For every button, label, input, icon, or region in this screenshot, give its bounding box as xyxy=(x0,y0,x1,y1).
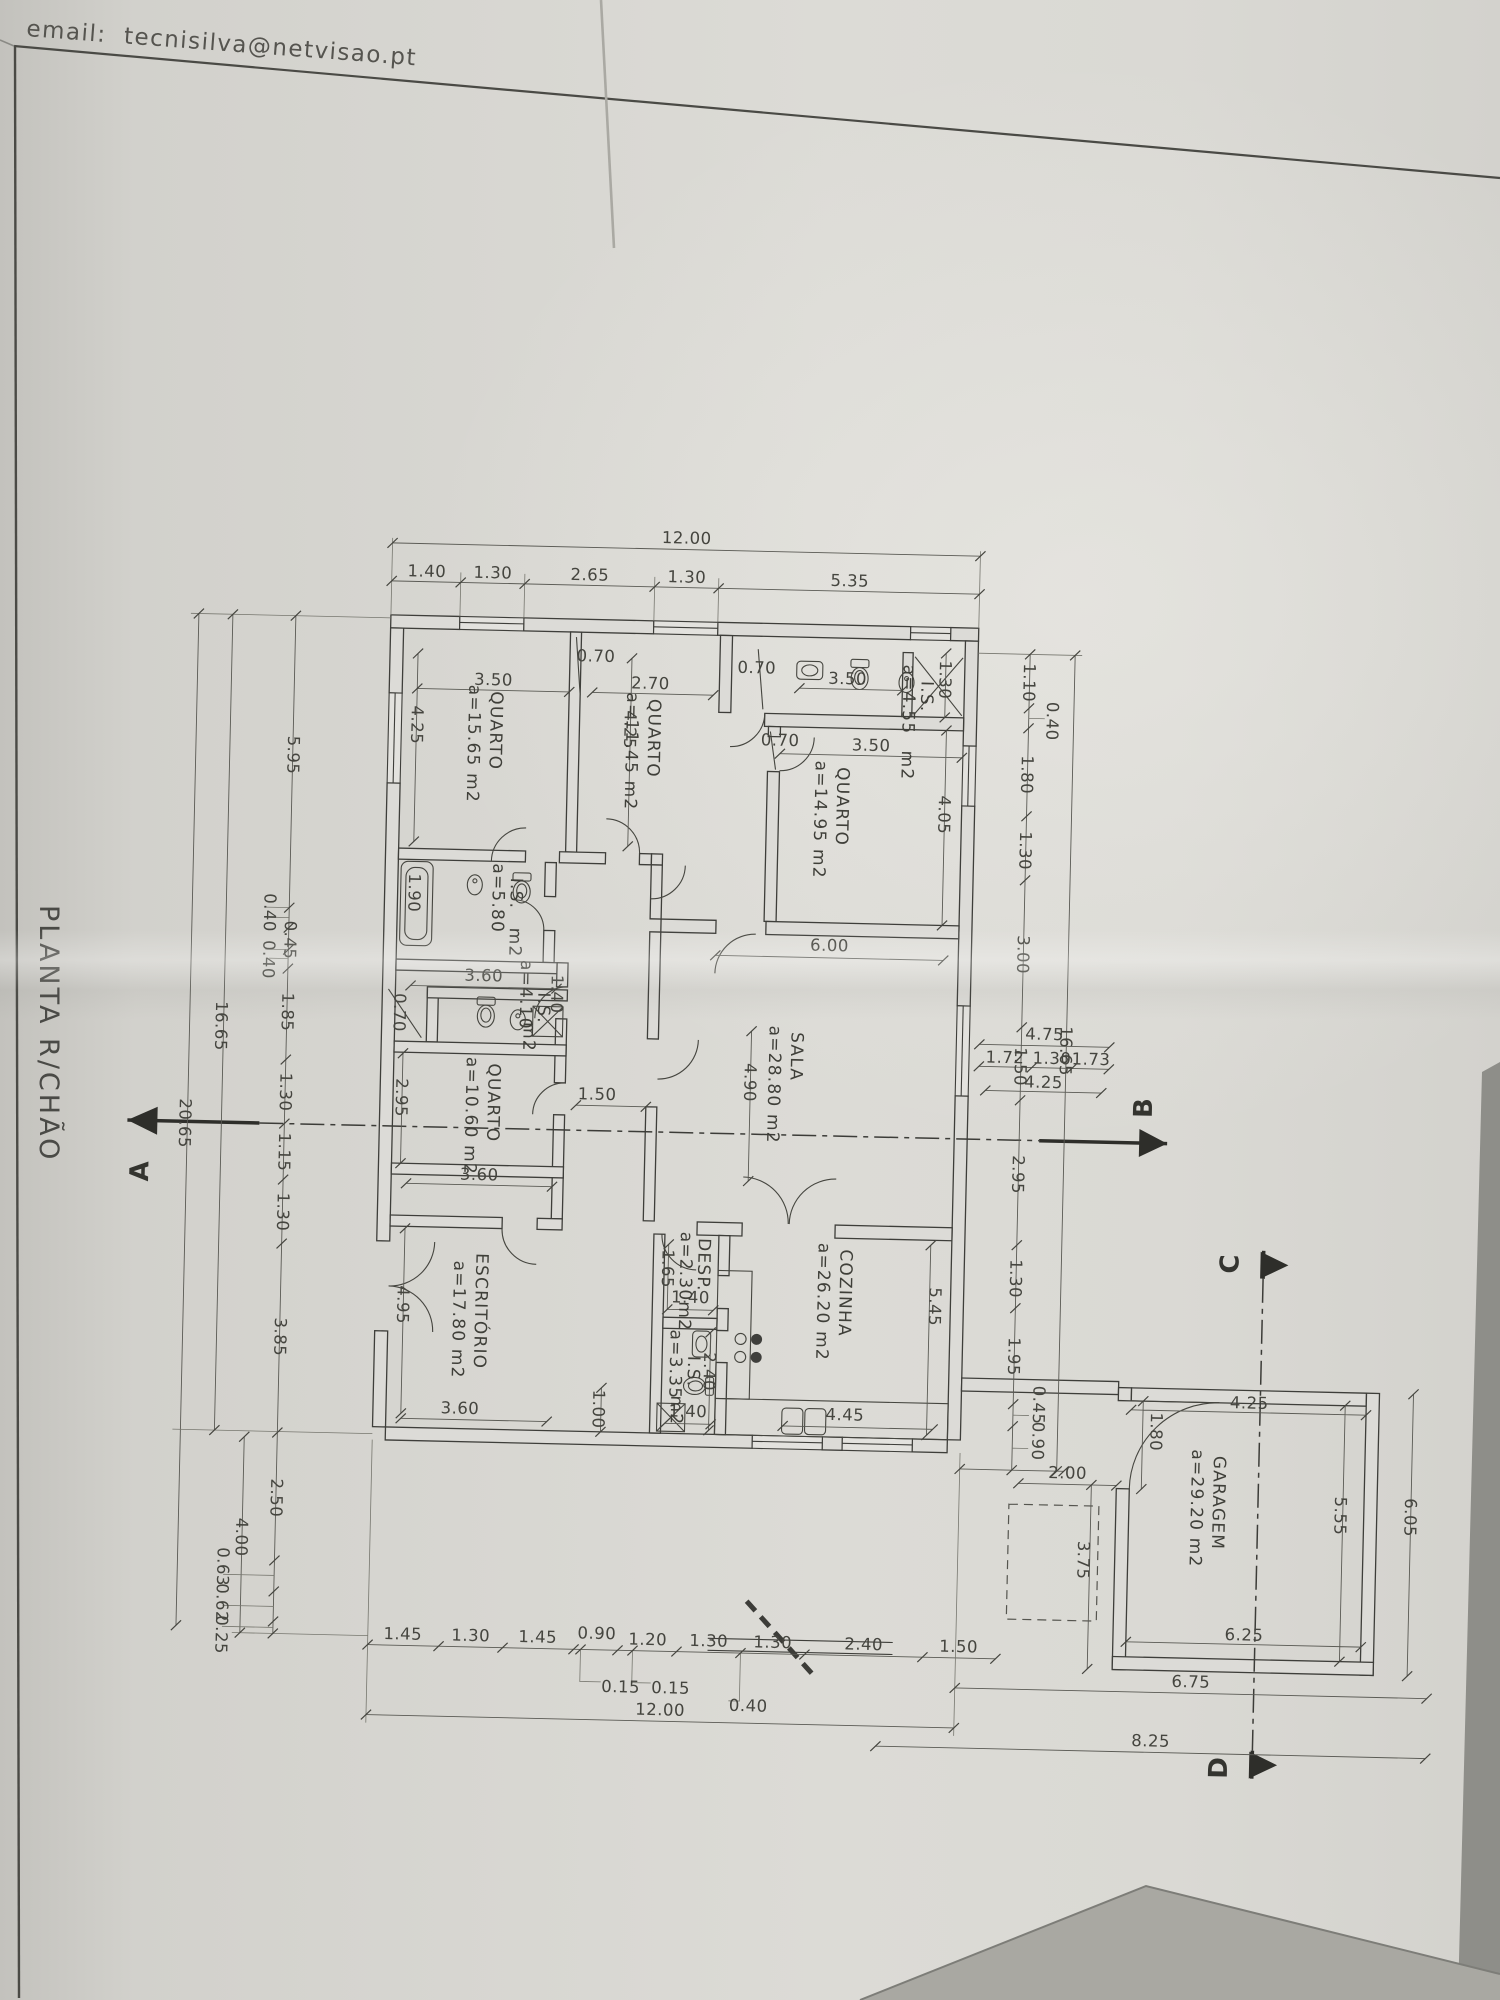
room-area-garagem: a=29.20 m2 xyxy=(1185,1449,1208,1568)
dim: 3.00 xyxy=(1013,935,1033,974)
dim: 0.45 xyxy=(280,920,300,959)
dim: 1.10 xyxy=(1019,663,1039,702)
dim: 0.40 xyxy=(260,893,280,932)
dim-left-overall: 20.65 xyxy=(175,1098,195,1148)
room-unit-is-main: m2 xyxy=(504,928,525,958)
sink-icon xyxy=(797,661,823,680)
dim: 1.85 xyxy=(277,992,297,1031)
room-name-quarto1: QUARTO xyxy=(484,691,506,770)
section-arrow-c xyxy=(1260,1252,1289,1280)
dim: 3.85 xyxy=(270,1317,290,1356)
dim: 2.40 xyxy=(844,1634,883,1654)
dim: 0.40 xyxy=(259,940,279,979)
dim-door: 0.70 xyxy=(389,993,409,1032)
dim: 1.45 xyxy=(383,1624,422,1644)
dim: 5.95 xyxy=(283,735,303,774)
dim: 4.95 xyxy=(393,1285,413,1324)
dim: 3.50 xyxy=(852,735,891,755)
room-unit-is-small: m2 xyxy=(518,1022,539,1052)
floor-plan-drawing: email: tecnisilva@netvisao.pt PLANTA R/C… xyxy=(0,0,1500,2000)
dim: 6.00 xyxy=(810,935,849,955)
dim: 8.25 xyxy=(1131,1731,1170,1751)
fold-crease xyxy=(601,0,614,248)
dim: 0.63 xyxy=(213,1547,233,1586)
dim: 3.50 xyxy=(828,669,867,689)
dim: 0.15 xyxy=(651,1678,690,1698)
dim: 1.95 xyxy=(1004,1337,1024,1376)
dim: 3.60 xyxy=(440,1398,479,1418)
room-area-quarto4: a=10.60 m2 xyxy=(459,1057,482,1176)
room-area-desp: a=2.30m2 xyxy=(674,1231,696,1331)
room-name-cozinha: COZINHA xyxy=(834,1249,856,1337)
dim: 5.35 xyxy=(830,571,869,591)
dim: 4.00 xyxy=(232,1517,252,1556)
dim: 2.00 xyxy=(1048,1463,1087,1483)
dim: 4.90 xyxy=(740,1063,760,1102)
section-arrow-d xyxy=(1249,1752,1278,1780)
stove-burner-icon xyxy=(735,1333,746,1344)
dim: 5.55 xyxy=(1330,1496,1350,1535)
dim: 0.40 xyxy=(1042,702,1062,741)
room-name-quarto2: QUARTO xyxy=(642,699,664,778)
room-name-quarto4: QUARTO xyxy=(482,1063,504,1142)
room-area-quarto2: a=11.45 m2 xyxy=(620,692,643,811)
dim-door: 0.70 xyxy=(737,658,776,678)
dim: 1.80 xyxy=(1017,755,1037,794)
dim: 1.30 xyxy=(451,1626,490,1646)
dim: 2.95 xyxy=(1008,1155,1028,1194)
dim: 1.30 xyxy=(273,1192,293,1231)
section-arrow-a xyxy=(127,1106,158,1135)
room-area-is-top: a=4.55 xyxy=(897,664,919,734)
toilet-icon xyxy=(477,997,496,1027)
section-arrow-b xyxy=(1139,1129,1168,1158)
dim: 1.30 xyxy=(473,563,512,583)
dim: 1.40 xyxy=(407,561,446,581)
dim: 4.05 xyxy=(934,795,954,834)
dim: 0.40 xyxy=(729,1696,768,1716)
dim-bathtub: 1.90 xyxy=(404,873,424,912)
dim: 1.45 xyxy=(518,1627,557,1647)
kitchen-sink-icon xyxy=(781,1408,803,1434)
room-name-garagem: GARAGEM xyxy=(1207,1456,1229,1551)
room-area-escritorio: a=17.80 m2 xyxy=(447,1260,470,1379)
dim: 1.65 xyxy=(658,1249,678,1288)
dim: 0.15 xyxy=(601,1677,640,1697)
dim: 1.50 xyxy=(1010,1047,1030,1086)
dim: 3.75 xyxy=(1073,1541,1093,1580)
dim-right-total: 16.65 xyxy=(1056,1026,1076,1076)
dim: 0.45 xyxy=(1029,1386,1049,1425)
dim-bottom-total: 12.00 xyxy=(635,1700,685,1720)
room-area-is-small: a=4.10 xyxy=(515,960,537,1030)
dim: 1.30 xyxy=(753,1632,792,1652)
section-label-c: C xyxy=(1215,1254,1245,1274)
room-unit-is-top: m2 xyxy=(896,750,917,780)
section-label-a: A xyxy=(125,1161,155,1182)
room-area-is-kitchen: a=3.35 xyxy=(664,1329,686,1399)
dim: 1.50 xyxy=(578,1084,617,1104)
section-label-b: B xyxy=(1129,1098,1159,1119)
dim: 6.25 xyxy=(1224,1625,1263,1645)
dim: 1.20 xyxy=(628,1630,667,1650)
dim: 1.30 xyxy=(1006,1259,1026,1298)
dim-top-total: 12.00 xyxy=(662,528,712,548)
room-area-cozinha: a=26.20 m2 xyxy=(811,1243,834,1362)
dim: 1.30 xyxy=(667,567,706,587)
dim: 3.60 xyxy=(464,966,503,986)
dim: 2.70 xyxy=(631,673,670,693)
dim: 1.30 xyxy=(1015,831,1035,870)
bidet-icon xyxy=(467,875,482,895)
dim: 0.25 xyxy=(211,1615,231,1654)
dim-door: 0.70 xyxy=(576,646,615,666)
room-unit-is-kitchen: m2 xyxy=(666,1395,687,1425)
dim: 4.25 xyxy=(1230,1393,1269,1413)
dim: 0.90 xyxy=(1028,1422,1048,1461)
room-name-escritorio: ESCRITÓRIO xyxy=(469,1253,494,1370)
room-area-is-main: a=5.80 xyxy=(487,863,509,933)
dim: 1.73 xyxy=(1071,1049,1110,1069)
section-label-d: D xyxy=(1204,1757,1234,1779)
room-area-sala: a=28.80 m2 xyxy=(762,1025,785,1144)
photographed-floor-plan-sheet: email: tecnisilva@netvisao.pt PLANTA R/C… xyxy=(0,0,1500,2000)
dim: 1.50 xyxy=(939,1637,978,1657)
dim: 0.90 xyxy=(577,1623,616,1643)
dim: 6.05 xyxy=(1400,1498,1420,1537)
dim: 4.45 xyxy=(825,1405,864,1425)
dim: 4.25 xyxy=(407,705,427,744)
dim: 2.65 xyxy=(570,565,609,585)
dim: 1.30 xyxy=(935,660,955,699)
dim: 5.45 xyxy=(925,1287,945,1326)
room-area-quarto3: a=14.95 m2 xyxy=(808,760,831,879)
dimension-labels: 12.00 1.40 1.30 2.65 1.30 5.35 3.50 2.70… xyxy=(162,517,1442,1756)
room-name-sala: SALA xyxy=(785,1032,806,1081)
dim: 1.30 xyxy=(276,1072,296,1111)
dim: 1.15 xyxy=(274,1132,294,1171)
dim: 1.80 xyxy=(1146,1412,1166,1451)
dim-left-total: 16.65 xyxy=(211,1001,231,1051)
dim: 2.50 xyxy=(266,1478,286,1517)
room-area-quarto1: a=15.65 m2 xyxy=(462,685,485,804)
dim: 1.30 xyxy=(689,1631,728,1651)
dim: 1.00 xyxy=(589,1390,609,1429)
dim: 6.75 xyxy=(1171,1672,1210,1692)
page-title: PLANTA R/CHÃO xyxy=(33,905,65,1162)
email-label: email: tecnisilva@netvisao.pt xyxy=(26,16,418,71)
dim: 2.95 xyxy=(392,1078,412,1117)
plan-group: A B C D 12.00 1.40 1.30 2.65 1.30 5.35 3… xyxy=(112,516,1458,1783)
dim-door: 0.70 xyxy=(761,730,800,750)
room-name-quarto3: QUARTO xyxy=(831,767,853,846)
